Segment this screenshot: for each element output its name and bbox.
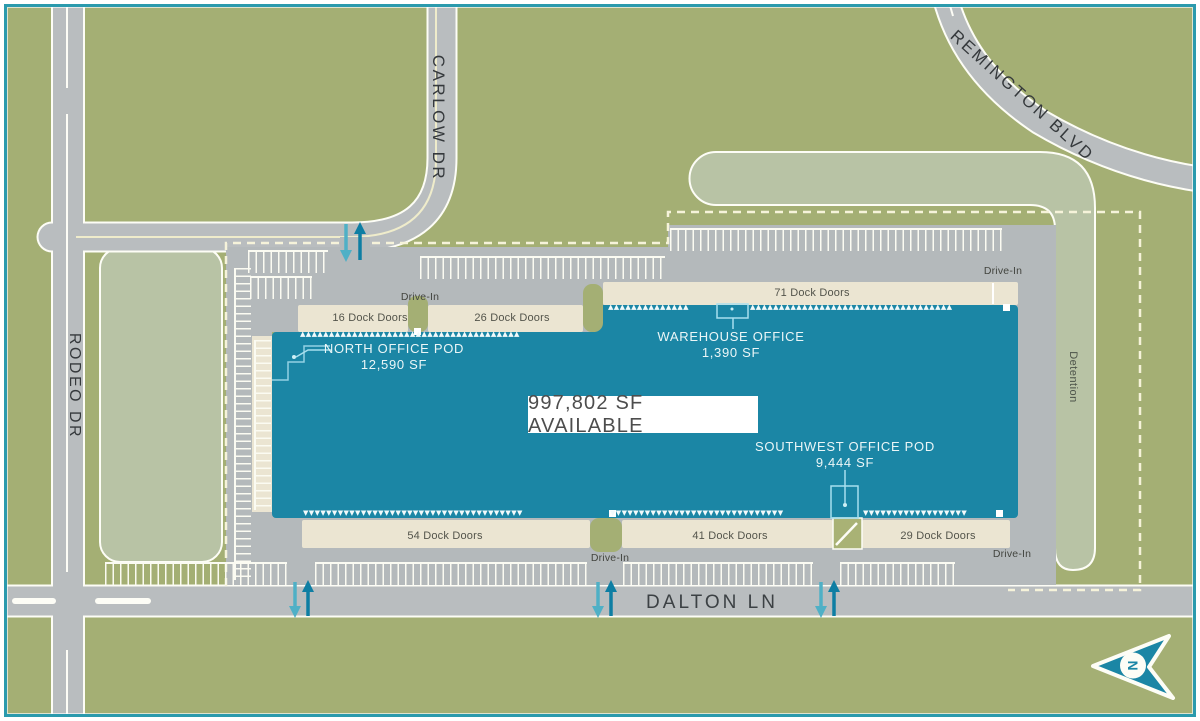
detention-label: Detention — [1067, 351, 1079, 403]
available-sf-callout: 997,802 SF AVAILABLE — [528, 396, 758, 433]
parking-stalls — [420, 256, 665, 279]
trailer-stalls — [105, 562, 287, 585]
road-carlow — [52, 0, 442, 237]
north-office-pod-name: NORTH OFFICE POD — [324, 341, 464, 357]
drive-in-label-s: Drive-In — [591, 552, 629, 564]
site-plan: N ▲▲▲▲▲▲▲▲▲▲▲▲▲▲▲▲▲▲▲▲▲▲▲▲▲▲▲▲▲▲▲▲▲▲▲▲▲▲… — [0, 0, 1200, 721]
dock-label-26: 26 Dock Doors — [474, 312, 549, 324]
dock-band-divider — [992, 283, 994, 304]
parking-stalls — [248, 250, 328, 273]
north-compass-icon: N — [1093, 636, 1173, 698]
dock-door-markers-north-east: ▲▲▲▲▲▲▲▲▲▲▲▲▲▲▲▲▲▲▲▲▲▲▲▲▲▲▲▲▲▲▲▲▲▲▲ — [750, 303, 1008, 311]
dock-label-16: 16 Dock Doors — [332, 312, 407, 324]
trailer-stalls — [315, 562, 587, 585]
warehouse-office-area: 1,390 SF — [657, 345, 804, 361]
dock-door-markers-south-west: ▼▼▼▼▼▼▼▼▼▼▼▼▼▼▼▼▼▼▼▼▼▼▼▼▼▼▼▼▼▼▼▼▼▼▼▼▼▼ — [303, 509, 587, 517]
dock-label-41: 41 Dock Doors — [692, 530, 767, 542]
drive-in-label-se: Drive-In — [993, 548, 1031, 560]
north-office-pod-area: 12,590 SF — [324, 357, 464, 373]
road-label-dalton: DALTON LN — [646, 592, 778, 614]
road-label-rodeo: RODEO DR — [65, 333, 83, 439]
compass-north-letter: N — [1125, 660, 1141, 670]
parking-stalls — [254, 340, 271, 510]
drive-in-label-ne: Drive-In — [984, 265, 1022, 277]
trailer-stalls — [840, 562, 955, 585]
dock-door-markers-south-center: ▼▼▼▼▼▼▼▼▼▼▼▼▼▼▼▼▼▼▼▼▼▼▼▼▼▼▼▼▼▼ — [610, 509, 830, 517]
trailer-stalls — [623, 562, 813, 585]
parking-stalls — [234, 268, 251, 580]
dock-label-54: 54 Dock Doors — [407, 530, 482, 542]
dock-door-markers-south-east: ▼▼▼▼▼▼▼▼▼▼▼▼▼▼▼▼▼▼ — [863, 509, 995, 517]
warehouse-office-name: WAREHOUSE OFFICE — [657, 329, 804, 345]
southwest-office-pod-name: SOUTHWEST OFFICE POD — [755, 439, 935, 455]
north-office-pod-label: NORTH OFFICE POD 12,590 SF — [324, 341, 464, 373]
available-sf-text: 997,802 SF AVAILABLE — [528, 392, 758, 438]
drive-in-label-nw: Drive-In — [401, 291, 439, 303]
dock-label-29: 29 Dock Doors — [900, 530, 975, 542]
road-label-carlow: CARLOW DR — [428, 55, 448, 181]
parking-stalls — [250, 276, 312, 299]
dock-door-markers-north-east: ▲▲▲▲▲▲▲▲▲▲▲▲▲▲ — [608, 303, 714, 311]
parking-stalls — [670, 228, 1002, 251]
southwest-office-pod-area: 9,444 SF — [755, 455, 935, 471]
warehouse-office-label: WAREHOUSE OFFICE 1,390 SF — [657, 329, 804, 361]
dock-door-markers-north-west: ▲▲▲▲▲▲▲▲▲▲▲▲▲▲▲▲▲▲▲▲▲▲▲▲▲▲▲▲▲▲▲▲▲▲▲▲▲▲ — [300, 330, 582, 338]
southwest-office-pod-label: SOUTHWEST OFFICE POD 9,444 SF — [755, 439, 935, 471]
dock-label-71: 71 Dock Doors — [774, 287, 849, 299]
